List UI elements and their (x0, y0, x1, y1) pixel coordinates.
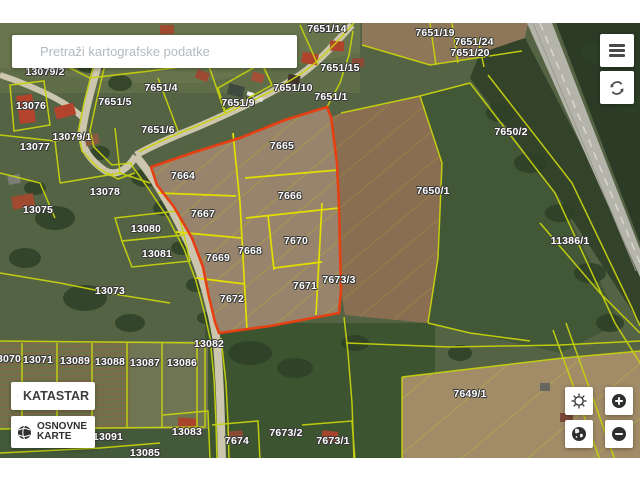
menu-button[interactable] (600, 34, 634, 67)
zoom-in-button[interactable] (605, 387, 633, 415)
map-imagery (0, 23, 640, 458)
katastar-layer-button[interactable]: KATASTAR (11, 382, 95, 410)
refresh-button[interactable] (600, 71, 634, 104)
basemap-globe-icon (17, 425, 32, 440)
plus-icon (610, 392, 628, 410)
hamburger-icon (609, 42, 625, 59)
earth-globe-icon (570, 425, 588, 443)
osnovne-karte-layer-button[interactable]: OSNOVNE KARTE (11, 416, 95, 448)
zoom-out-button[interactable] (605, 420, 633, 448)
top-whitespace (0, 0, 640, 23)
search-box[interactable] (12, 35, 297, 68)
search-input[interactable] (12, 35, 297, 68)
bottom-whitespace (0, 458, 640, 480)
folded-map-icon (17, 389, 18, 404)
globe-button[interactable] (565, 420, 593, 448)
locate-button[interactable] (565, 387, 593, 415)
minus-icon (610, 425, 628, 443)
refresh-icon (608, 79, 626, 97)
map-canvas[interactable]: 7651/147651/197651/247651/207651/157651/… (0, 23, 640, 458)
osnovne-karte-label: OSNOVNE KARTE (37, 422, 87, 443)
app-window: 7651/147651/197651/247651/207651/157651/… (0, 0, 640, 480)
katastar-label: KATASTAR (23, 389, 89, 403)
compass-locate-icon (570, 392, 588, 410)
